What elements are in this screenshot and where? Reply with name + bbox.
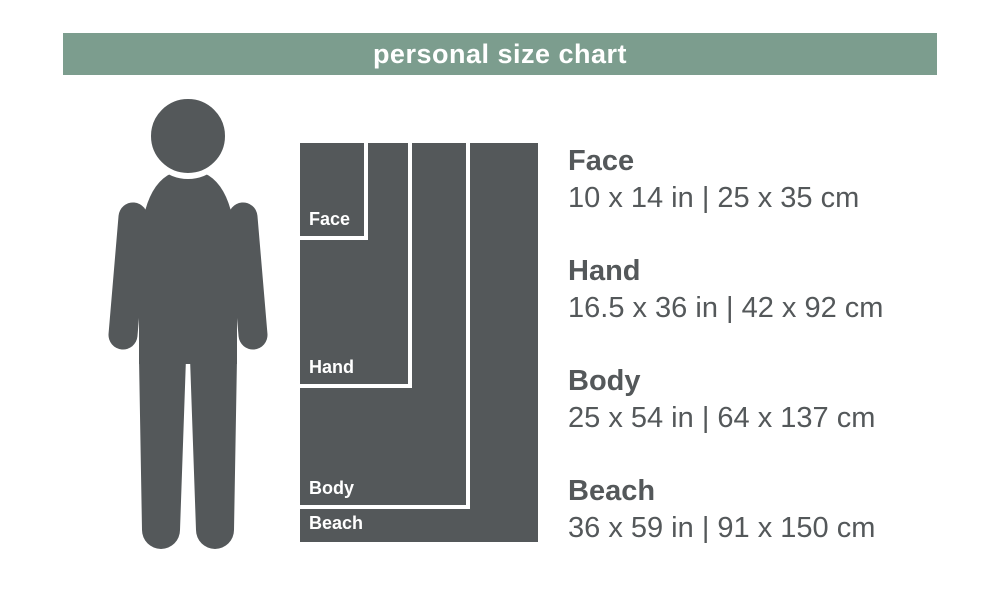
diagram-label-body: Body <box>309 478 354 499</box>
person-right-arm <box>243 217 253 335</box>
size-dimensions-hand: 16.5 x 36 in | 42 x 92 cm <box>568 290 883 326</box>
size-dimensions-beach: 36 x 59 in | 91 x 150 cm <box>568 510 883 546</box>
size-dimensions-face: 10 x 14 in | 25 x 35 cm <box>568 180 883 216</box>
size-entry-beach: Beach 36 x 59 in | 91 x 150 cm <box>568 473 883 546</box>
person-silhouette-icon <box>103 92 273 557</box>
size-name-body: Body <box>568 363 883 400</box>
diagram-label-face: Face <box>309 209 350 230</box>
title-bar: personal size chart <box>63 33 937 75</box>
size-list: Face 10 x 14 in | 25 x 35 cm Hand 16.5 x… <box>568 143 883 583</box>
personal-size-chart: personal size chart Body Hand Face Beach… <box>0 0 1000 600</box>
diagram-label-hand: Hand <box>309 357 354 378</box>
size-dimensions-body: 25 x 54 in | 64 x 137 cm <box>568 400 883 436</box>
person-left-leg <box>139 358 186 549</box>
person-head <box>148 96 228 176</box>
size-entry-face: Face 10 x 14 in | 25 x 35 cm <box>568 143 883 216</box>
towel-size-diagram: Body Hand Face Beach <box>300 143 538 542</box>
size-name-beach: Beach <box>568 473 883 510</box>
size-name-hand: Hand <box>568 253 883 290</box>
person-right-leg <box>190 358 237 549</box>
page-title: personal size chart <box>373 39 627 70</box>
face-size-outline: Face <box>300 143 368 240</box>
size-name-face: Face <box>568 143 883 180</box>
diagram-label-beach: Beach <box>309 513 363 534</box>
person-torso <box>139 170 237 364</box>
size-entry-hand: Hand 16.5 x 36 in | 42 x 92 cm <box>568 253 883 326</box>
person-left-arm <box>123 217 133 335</box>
size-entry-body: Body 25 x 54 in | 64 x 137 cm <box>568 363 883 436</box>
